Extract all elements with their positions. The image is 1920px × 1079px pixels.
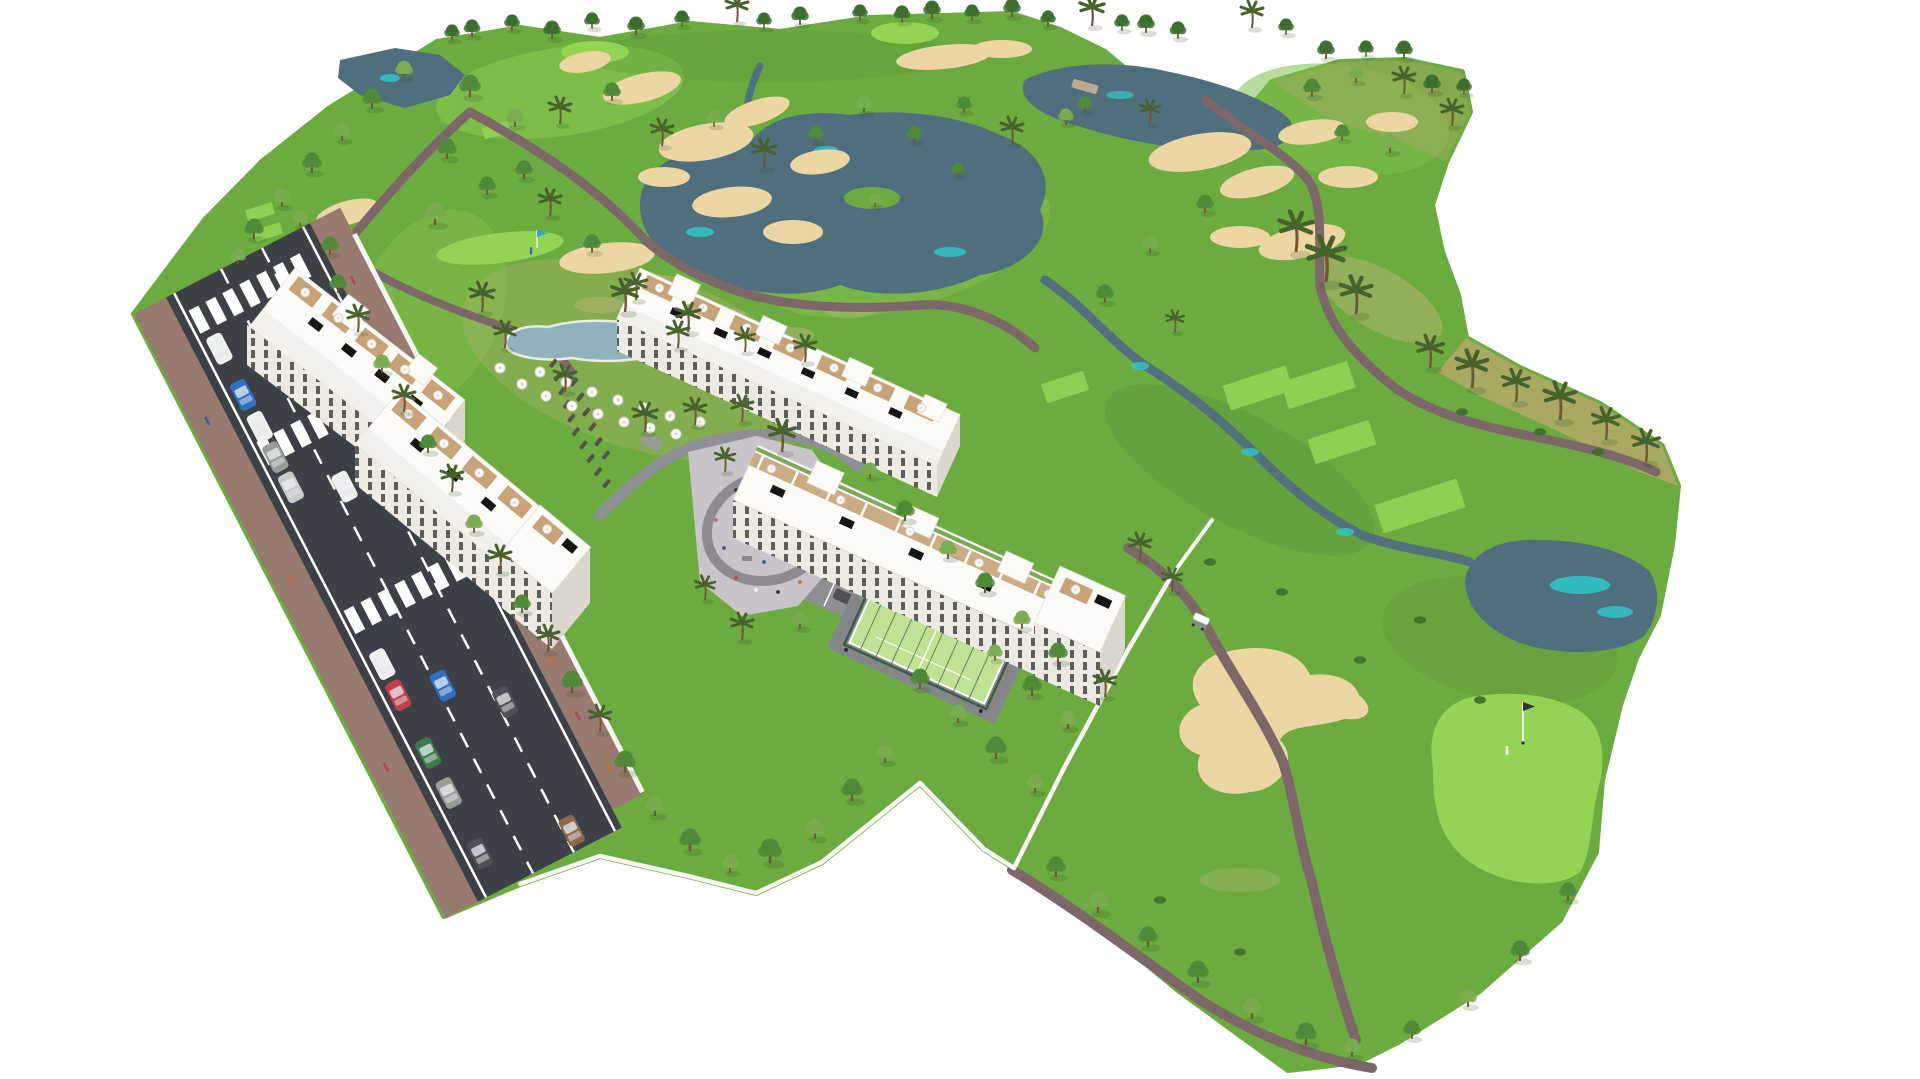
render-canvas bbox=[0, 0, 1920, 1079]
aerial-render bbox=[0, 0, 1920, 1079]
